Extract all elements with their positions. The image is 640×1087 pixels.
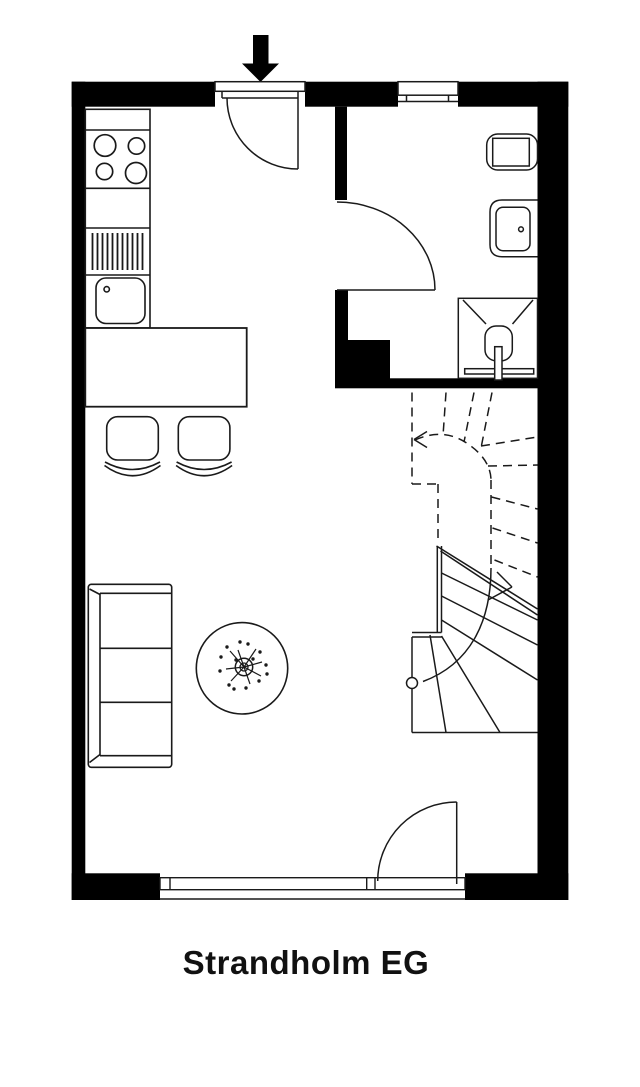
dining-chairs: [105, 417, 233, 476]
arrow-head: [242, 64, 279, 83]
toilet-seat: [493, 138, 530, 166]
washbasin: [490, 200, 538, 257]
stair-treads: [430, 573, 538, 733]
arrow-shaft: [253, 35, 269, 64]
toilet: [487, 134, 538, 170]
chair-seat: [178, 417, 230, 460]
chair-back: [105, 462, 160, 470]
entrance-jambs: [222, 91, 298, 98]
entrance-arrow: [242, 35, 279, 82]
stair-lower-flight: [407, 546, 538, 733]
wall-right: [538, 82, 569, 900]
chair-back: [177, 462, 232, 470]
terrace-door: [378, 802, 457, 884]
bathroom-door: [337, 202, 435, 290]
chair-seat: [107, 417, 159, 460]
wall-left: [72, 82, 86, 900]
stair-upper-boundary: [412, 393, 438, 544]
shower-pipe: [495, 347, 502, 380]
stair-step-edge: [412, 633, 442, 638]
stair-stringer: [437, 546, 441, 633]
entrance-door: [215, 82, 305, 169]
floor-plan-drawing: [0, 0, 640, 1087]
chair-back: [105, 466, 161, 476]
bathroom-door-swing: [337, 202, 435, 290]
wall-hall-bath-upper: [335, 107, 347, 200]
kitchen-counter: [85, 109, 150, 328]
shower: [458, 298, 537, 380]
floor-plan-title: Strandholm EG: [0, 944, 612, 982]
terrace-window: [160, 873, 465, 900]
dining-table: [85, 328, 246, 407]
wall-top-left: [72, 82, 215, 107]
stair-walkline-curve: [415, 434, 491, 566]
wall-bottom-right: [465, 873, 568, 900]
stair-newel-post: [407, 678, 418, 689]
wall-hall-bath-lower: [335, 290, 348, 340]
plant-table: [196, 623, 287, 714]
stair-inner-curve: [423, 568, 491, 682]
entrance-door-swing: [227, 98, 298, 169]
chair-back: [176, 466, 232, 476]
bathroom-window: [398, 82, 458, 102]
stair-upper-flight-dashed: [412, 393, 538, 578]
floor-plan-page: Strandholm EG: [0, 0, 640, 1087]
bathroom-window-frame: [398, 82, 458, 96]
wall-stair-nib: [335, 340, 390, 388]
entrance-frame: [215, 82, 305, 92]
wall-bath-bottom: [390, 378, 538, 388]
sofa: [88, 584, 171, 767]
wall-bottom-left: [72, 873, 160, 900]
sofa-outline: [88, 584, 171, 767]
terrace-door-swing: [378, 802, 457, 881]
bathroom-window-glazing: [398, 95, 458, 101]
staircase: [407, 393, 538, 733]
wall-top-mid: [305, 82, 398, 107]
